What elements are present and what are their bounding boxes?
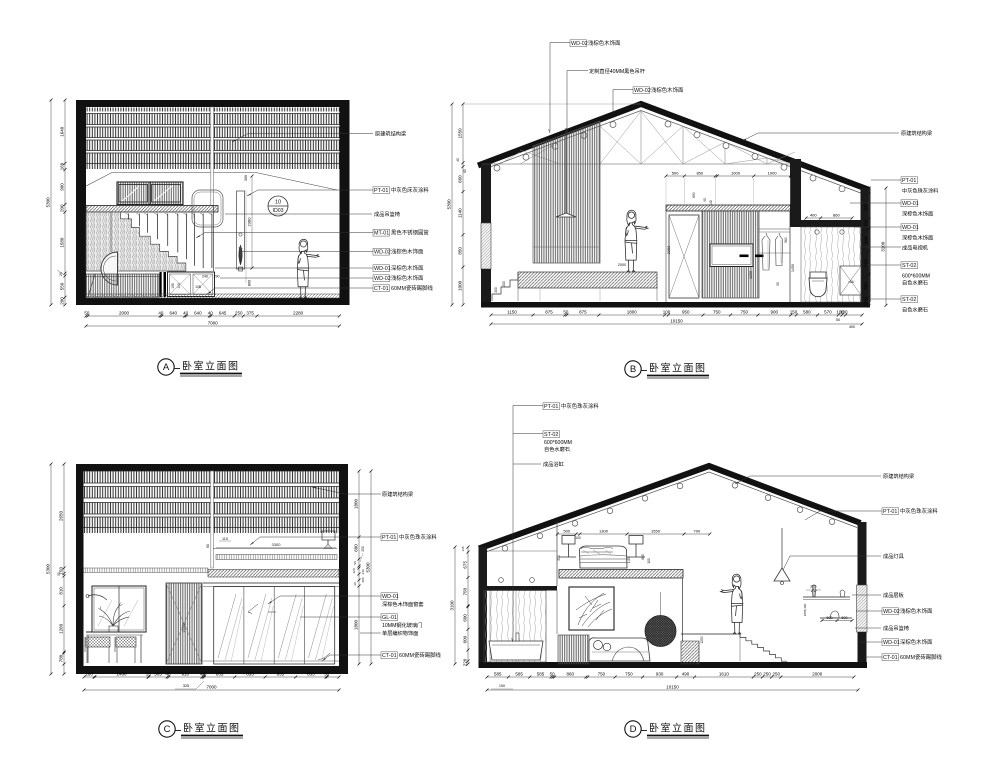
- svg-text:成品浴缸: 成品浴缸: [543, 460, 564, 468]
- svg-text:中灰色珠灰涂料: 中灰色珠灰涂料: [900, 507, 938, 515]
- svg-text:1580: 1580: [60, 237, 65, 248]
- svg-text:2000: 2000: [119, 311, 130, 316]
- svg-text:浅棕色木饰面: 浅棕色木饰面: [391, 274, 424, 282]
- svg-text:750: 750: [713, 310, 721, 315]
- svg-text:10: 10: [275, 200, 281, 206]
- svg-text:400: 400: [810, 213, 817, 218]
- svg-text:浅棕色木饰面: 浅棕色木饰面: [391, 248, 424, 256]
- svg-text:600: 600: [463, 635, 468, 643]
- svg-text:原建筑结构梁: 原建筑结构梁: [382, 490, 413, 498]
- svg-text:定制直径40MM黑色吊杆: 定制直径40MM黑色吊杆: [589, 67, 645, 75]
- svg-text:675: 675: [463, 561, 468, 569]
- svg-text:D: D: [630, 724, 637, 735]
- svg-text:835: 835: [216, 672, 224, 677]
- svg-text:10150: 10150: [670, 319, 683, 324]
- svg-text:750: 750: [463, 587, 468, 595]
- svg-text:2000: 2000: [812, 672, 823, 677]
- svg-text:320: 320: [352, 568, 356, 573]
- svg-text:20: 20: [146, 672, 152, 677]
- svg-text:深棕色木饰面: 深棕色木饰面: [900, 638, 933, 646]
- svg-text:深棕色木饰面: 深棕色木饰面: [902, 210, 933, 218]
- svg-text:60: 60: [463, 169, 467, 173]
- svg-text:2100: 2100: [181, 623, 186, 633]
- svg-text:700: 700: [694, 529, 701, 534]
- svg-text:PT-01: PT-01: [374, 188, 388, 194]
- svg-text:WD-02: WD-02: [883, 609, 900, 615]
- svg-text:MT-01: MT-01: [374, 231, 389, 237]
- svg-text:自色水磨石: 自色水磨石: [902, 279, 928, 287]
- svg-text:30: 30: [201, 672, 207, 677]
- svg-text:1800: 1800: [354, 498, 359, 509]
- svg-text:500: 500: [827, 616, 833, 620]
- svg-text:自色水磨石: 自色水磨石: [902, 306, 928, 314]
- svg-text:585: 585: [537, 672, 545, 677]
- svg-text:WD-01: WD-01: [374, 266, 391, 272]
- svg-text:CT-01: CT-01: [374, 286, 389, 292]
- svg-text:900: 900: [771, 310, 779, 315]
- svg-text:1000: 1000: [731, 171, 741, 176]
- svg-text:1300: 1300: [599, 529, 609, 534]
- svg-text:PT-01: PT-01: [544, 404, 558, 410]
- svg-text:910: 910: [182, 672, 190, 677]
- svg-text:5300: 5300: [46, 197, 51, 208]
- svg-text:280: 280: [85, 672, 93, 677]
- svg-text:ST-02: ST-02: [902, 263, 916, 269]
- svg-text:835: 835: [246, 672, 254, 677]
- svg-text:成品层板: 成品层板: [883, 591, 905, 599]
- svg-text:深棕色木饰面窗套: 深棕色木饰面窗套: [382, 600, 424, 608]
- svg-text:PT-01: PT-01: [902, 178, 916, 184]
- svg-text:B: B: [630, 364, 636, 375]
- svg-text:WD-02: WD-02: [634, 88, 651, 94]
- svg-text:100: 100: [647, 558, 651, 564]
- svg-text:220: 220: [463, 658, 468, 666]
- svg-text:580: 580: [864, 282, 869, 290]
- svg-text:1250: 1250: [700, 636, 704, 644]
- svg-text:490: 490: [682, 672, 690, 677]
- svg-text:WD-01: WD-01: [902, 225, 919, 231]
- svg-text:200: 200: [361, 577, 365, 582]
- svg-text:930: 930: [656, 672, 664, 677]
- svg-text:580: 580: [803, 310, 811, 315]
- svg-text:875: 875: [545, 310, 553, 315]
- svg-text:810: 810: [59, 587, 64, 595]
- svg-text:WD-01: WD-01: [883, 640, 900, 646]
- svg-text:浅棕色木饰面: 浅棕色木饰面: [588, 39, 621, 47]
- svg-text:A: A: [163, 362, 170, 373]
- svg-text:150: 150: [499, 684, 505, 688]
- svg-text:WD-02: WD-02: [571, 41, 588, 47]
- svg-text:1450: 1450: [791, 264, 795, 272]
- svg-text:750: 750: [740, 310, 748, 315]
- svg-text:5300: 5300: [46, 563, 51, 574]
- svg-text:60MM瓷砖踢脚线: 60MM瓷砖踢脚线: [399, 651, 442, 659]
- svg-text:750: 750: [598, 672, 606, 677]
- svg-text:40: 40: [158, 311, 164, 316]
- svg-text:250: 250: [763, 672, 771, 677]
- svg-text:1800: 1800: [627, 310, 638, 315]
- svg-text:1550: 1550: [651, 529, 661, 534]
- svg-text:50: 50: [84, 311, 90, 316]
- svg-text:50: 50: [776, 282, 780, 286]
- svg-text:750: 750: [810, 585, 816, 589]
- svg-text:600: 600: [354, 544, 359, 552]
- svg-text:230: 230: [864, 297, 869, 305]
- svg-text:卧室立面图: 卧室立面图: [182, 360, 240, 373]
- svg-text:60MM瓷砖踢脚线: 60MM瓷砖踢脚线: [900, 653, 943, 661]
- svg-text:20: 20: [353, 582, 357, 586]
- svg-text:1200: 1200: [749, 271, 753, 279]
- svg-text:30: 30: [324, 672, 330, 677]
- svg-text:950: 950: [682, 310, 690, 315]
- svg-text:640: 640: [194, 311, 202, 316]
- svg-text:2250: 2250: [667, 246, 671, 254]
- svg-text:卧室立面图: 卧室立面图: [649, 722, 707, 735]
- svg-text:325: 325: [183, 684, 189, 688]
- svg-text:中灰色珠灰涂料: 中灰色珠灰涂料: [399, 533, 437, 541]
- svg-text:600: 600: [864, 259, 869, 267]
- svg-text:WD-02: WD-02: [374, 276, 391, 282]
- svg-text:1150: 1150: [507, 310, 517, 315]
- svg-text:10B: 10B: [195, 285, 202, 289]
- svg-text:600*600MM: 600*600MM: [544, 440, 572, 446]
- svg-text:WD-01: WD-01: [382, 594, 399, 600]
- svg-text:深棕色木饰面: 深棕色木饰面: [391, 264, 424, 272]
- svg-text:CT-01: CT-01: [382, 653, 397, 659]
- svg-text:570: 570: [824, 310, 832, 315]
- svg-text:PT-01: PT-01: [382, 535, 396, 541]
- svg-text:50: 50: [550, 672, 556, 677]
- svg-text:250: 250: [754, 672, 762, 677]
- svg-text:50: 50: [353, 561, 357, 565]
- svg-text:105: 105: [171, 283, 175, 289]
- svg-text:10150: 10150: [666, 685, 679, 690]
- svg-text:50: 50: [836, 318, 840, 322]
- svg-text:835: 835: [277, 672, 285, 677]
- svg-text:50: 50: [57, 572, 61, 576]
- svg-text:850: 850: [458, 247, 463, 255]
- svg-text:1460: 1460: [116, 672, 127, 677]
- svg-text:585: 585: [515, 672, 523, 677]
- svg-text:835: 835: [307, 672, 315, 677]
- svg-text:100: 100: [840, 310, 848, 315]
- svg-text:160: 160: [60, 162, 65, 170]
- svg-text:860: 860: [566, 672, 574, 677]
- svg-text:1140: 1140: [458, 208, 463, 218]
- svg-text:WD-01: WD-01: [902, 201, 919, 207]
- svg-text:成品吊篮椅: 成品吊篮椅: [883, 624, 909, 632]
- svg-text:200: 200: [60, 297, 65, 305]
- svg-text:40: 40: [456, 158, 460, 162]
- svg-text:5300: 5300: [366, 562, 371, 573]
- svg-text:7000: 7000: [206, 685, 217, 690]
- svg-text:585: 585: [494, 672, 502, 677]
- svg-text:500: 500: [563, 529, 570, 534]
- svg-text:1260: 1260: [59, 623, 64, 634]
- svg-text:750: 750: [625, 672, 633, 677]
- svg-text:单层编织物饰面: 单层编织物饰面: [382, 629, 418, 637]
- svg-text:自色水磨石: 自色水磨石: [544, 445, 570, 453]
- svg-text:875: 875: [579, 310, 587, 315]
- svg-text:3100: 3100: [450, 600, 455, 611]
- svg-text:10MM钢化玻璃门: 10MM钢化玻璃门: [382, 621, 422, 629]
- svg-text:140: 140: [709, 200, 713, 206]
- svg-text:ID03: ID03: [273, 208, 284, 214]
- svg-text:50: 50: [563, 310, 569, 315]
- svg-text:780: 780: [59, 654, 64, 662]
- svg-text:250: 250: [361, 546, 365, 552]
- svg-text:300: 300: [244, 175, 248, 181]
- svg-text:600: 600: [463, 614, 468, 622]
- svg-text:375: 375: [246, 311, 254, 316]
- svg-text:290: 290: [214, 275, 220, 279]
- svg-text:1640: 1640: [60, 126, 65, 137]
- svg-text:640: 640: [169, 311, 177, 316]
- svg-text:中灰色床灰涂料: 中灰色床灰涂料: [391, 186, 429, 194]
- svg-text:2650: 2650: [59, 510, 64, 521]
- svg-text:成品吊篮椅: 成品吊篮椅: [374, 210, 400, 218]
- svg-text:115: 115: [222, 537, 228, 541]
- svg-text:浅棕色木饰面: 浅棕色木饰面: [651, 86, 684, 94]
- svg-text:原建筑结构梁: 原建筑结构梁: [883, 472, 914, 480]
- svg-text:原建筑结构梁: 原建筑结构梁: [375, 130, 406, 138]
- svg-text:645: 645: [219, 311, 227, 316]
- svg-text:5300: 5300: [447, 199, 452, 210]
- svg-text:60: 60: [206, 544, 210, 548]
- svg-text:2085,400: 2085,400: [803, 603, 807, 616]
- svg-text:2380: 2380: [247, 217, 252, 227]
- svg-text:中灰色珠灰涂料: 中灰色珠灰涂料: [561, 402, 599, 410]
- svg-text:黑色不锈钢圆管: 黑色不锈钢圆管: [391, 229, 429, 237]
- svg-text:600: 600: [864, 236, 869, 244]
- svg-text:卧室立面图: 卧室立面图: [183, 722, 241, 735]
- svg-text:C: C: [164, 724, 171, 735]
- svg-text:2000: 2000: [618, 263, 626, 267]
- svg-text:860: 860: [833, 213, 840, 218]
- svg-text:7000: 7000: [208, 321, 219, 326]
- svg-text:成品电视机: 成品电视机: [902, 244, 929, 252]
- svg-text:150: 150: [790, 310, 798, 315]
- svg-text:40: 40: [183, 311, 189, 316]
- svg-text:WD-02: WD-02: [374, 250, 391, 256]
- svg-text:1000: 1000: [458, 280, 463, 291]
- svg-text:250: 250: [235, 311, 243, 316]
- svg-text:110: 110: [177, 283, 181, 288]
- svg-text:中灰色珠灰涂料: 中灰色珠灰涂料: [902, 187, 938, 195]
- svg-text:深棕色木饰面: 深棕色木饰面: [902, 234, 933, 242]
- svg-text:ST-02: ST-02: [544, 432, 558, 438]
- svg-text:60MM瓷砖踢脚线: 60MM瓷砖踢脚线: [391, 284, 434, 292]
- svg-text:3100: 3100: [881, 241, 886, 252]
- svg-text:200: 200: [60, 204, 65, 212]
- svg-text:PT-01: PT-01: [883, 509, 897, 515]
- svg-text:原建筑结构梁: 原建筑结构梁: [901, 129, 932, 137]
- svg-text:550: 550: [60, 282, 65, 290]
- svg-text:850: 850: [696, 171, 703, 176]
- svg-text:660: 660: [458, 175, 463, 183]
- svg-text:505: 505: [154, 672, 162, 677]
- svg-text:3300: 3300: [272, 542, 282, 547]
- svg-text:浅棕色木饰面: 浅棕色木饰面: [900, 607, 933, 615]
- svg-text:×6A: ×6A: [848, 280, 855, 284]
- svg-text:1610: 1610: [719, 672, 730, 677]
- svg-text:100: 100: [663, 310, 671, 315]
- svg-text:135: 135: [461, 546, 465, 551]
- svg-text:600: 600: [641, 554, 645, 560]
- svg-text:800: 800: [248, 280, 252, 286]
- svg-text:400: 400: [849, 325, 855, 329]
- svg-text:250: 250: [772, 672, 780, 677]
- svg-text:1550: 1550: [458, 128, 463, 139]
- svg-text:560: 560: [784, 237, 788, 243]
- svg-text:CT-01: CT-01: [883, 655, 898, 661]
- svg-text:250: 250: [557, 555, 561, 561]
- svg-text:200: 200: [502, 281, 506, 287]
- svg-text:1000: 1000: [768, 171, 778, 176]
- svg-text:2280: 2280: [293, 311, 304, 316]
- svg-text:40: 40: [208, 311, 214, 316]
- svg-text:690: 690: [692, 192, 696, 198]
- svg-text:500: 500: [672, 171, 679, 176]
- svg-text:200: 200: [494, 287, 498, 293]
- svg-text:90: 90: [703, 198, 707, 202]
- svg-text:240: 240: [361, 569, 365, 574]
- svg-text:1,50: 1,50: [627, 557, 631, 563]
- svg-text:500: 500: [842, 616, 848, 620]
- svg-text:GL-01: GL-01: [382, 615, 397, 621]
- svg-text:成品灯具: 成品灯具: [883, 552, 904, 560]
- svg-text:40: 40: [165, 672, 171, 677]
- svg-text:250: 250: [864, 219, 869, 227]
- svg-text:1800: 1800: [354, 619, 359, 630]
- svg-text:ST-02: ST-02: [902, 297, 916, 303]
- svg-text:240: 240: [202, 275, 208, 279]
- svg-text:900: 900: [60, 183, 65, 191]
- svg-text:卧室立面图: 卧室立面图: [649, 362, 707, 375]
- svg-text:600*600MM: 600*600MM: [902, 274, 930, 280]
- svg-text:100: 100: [575, 536, 581, 540]
